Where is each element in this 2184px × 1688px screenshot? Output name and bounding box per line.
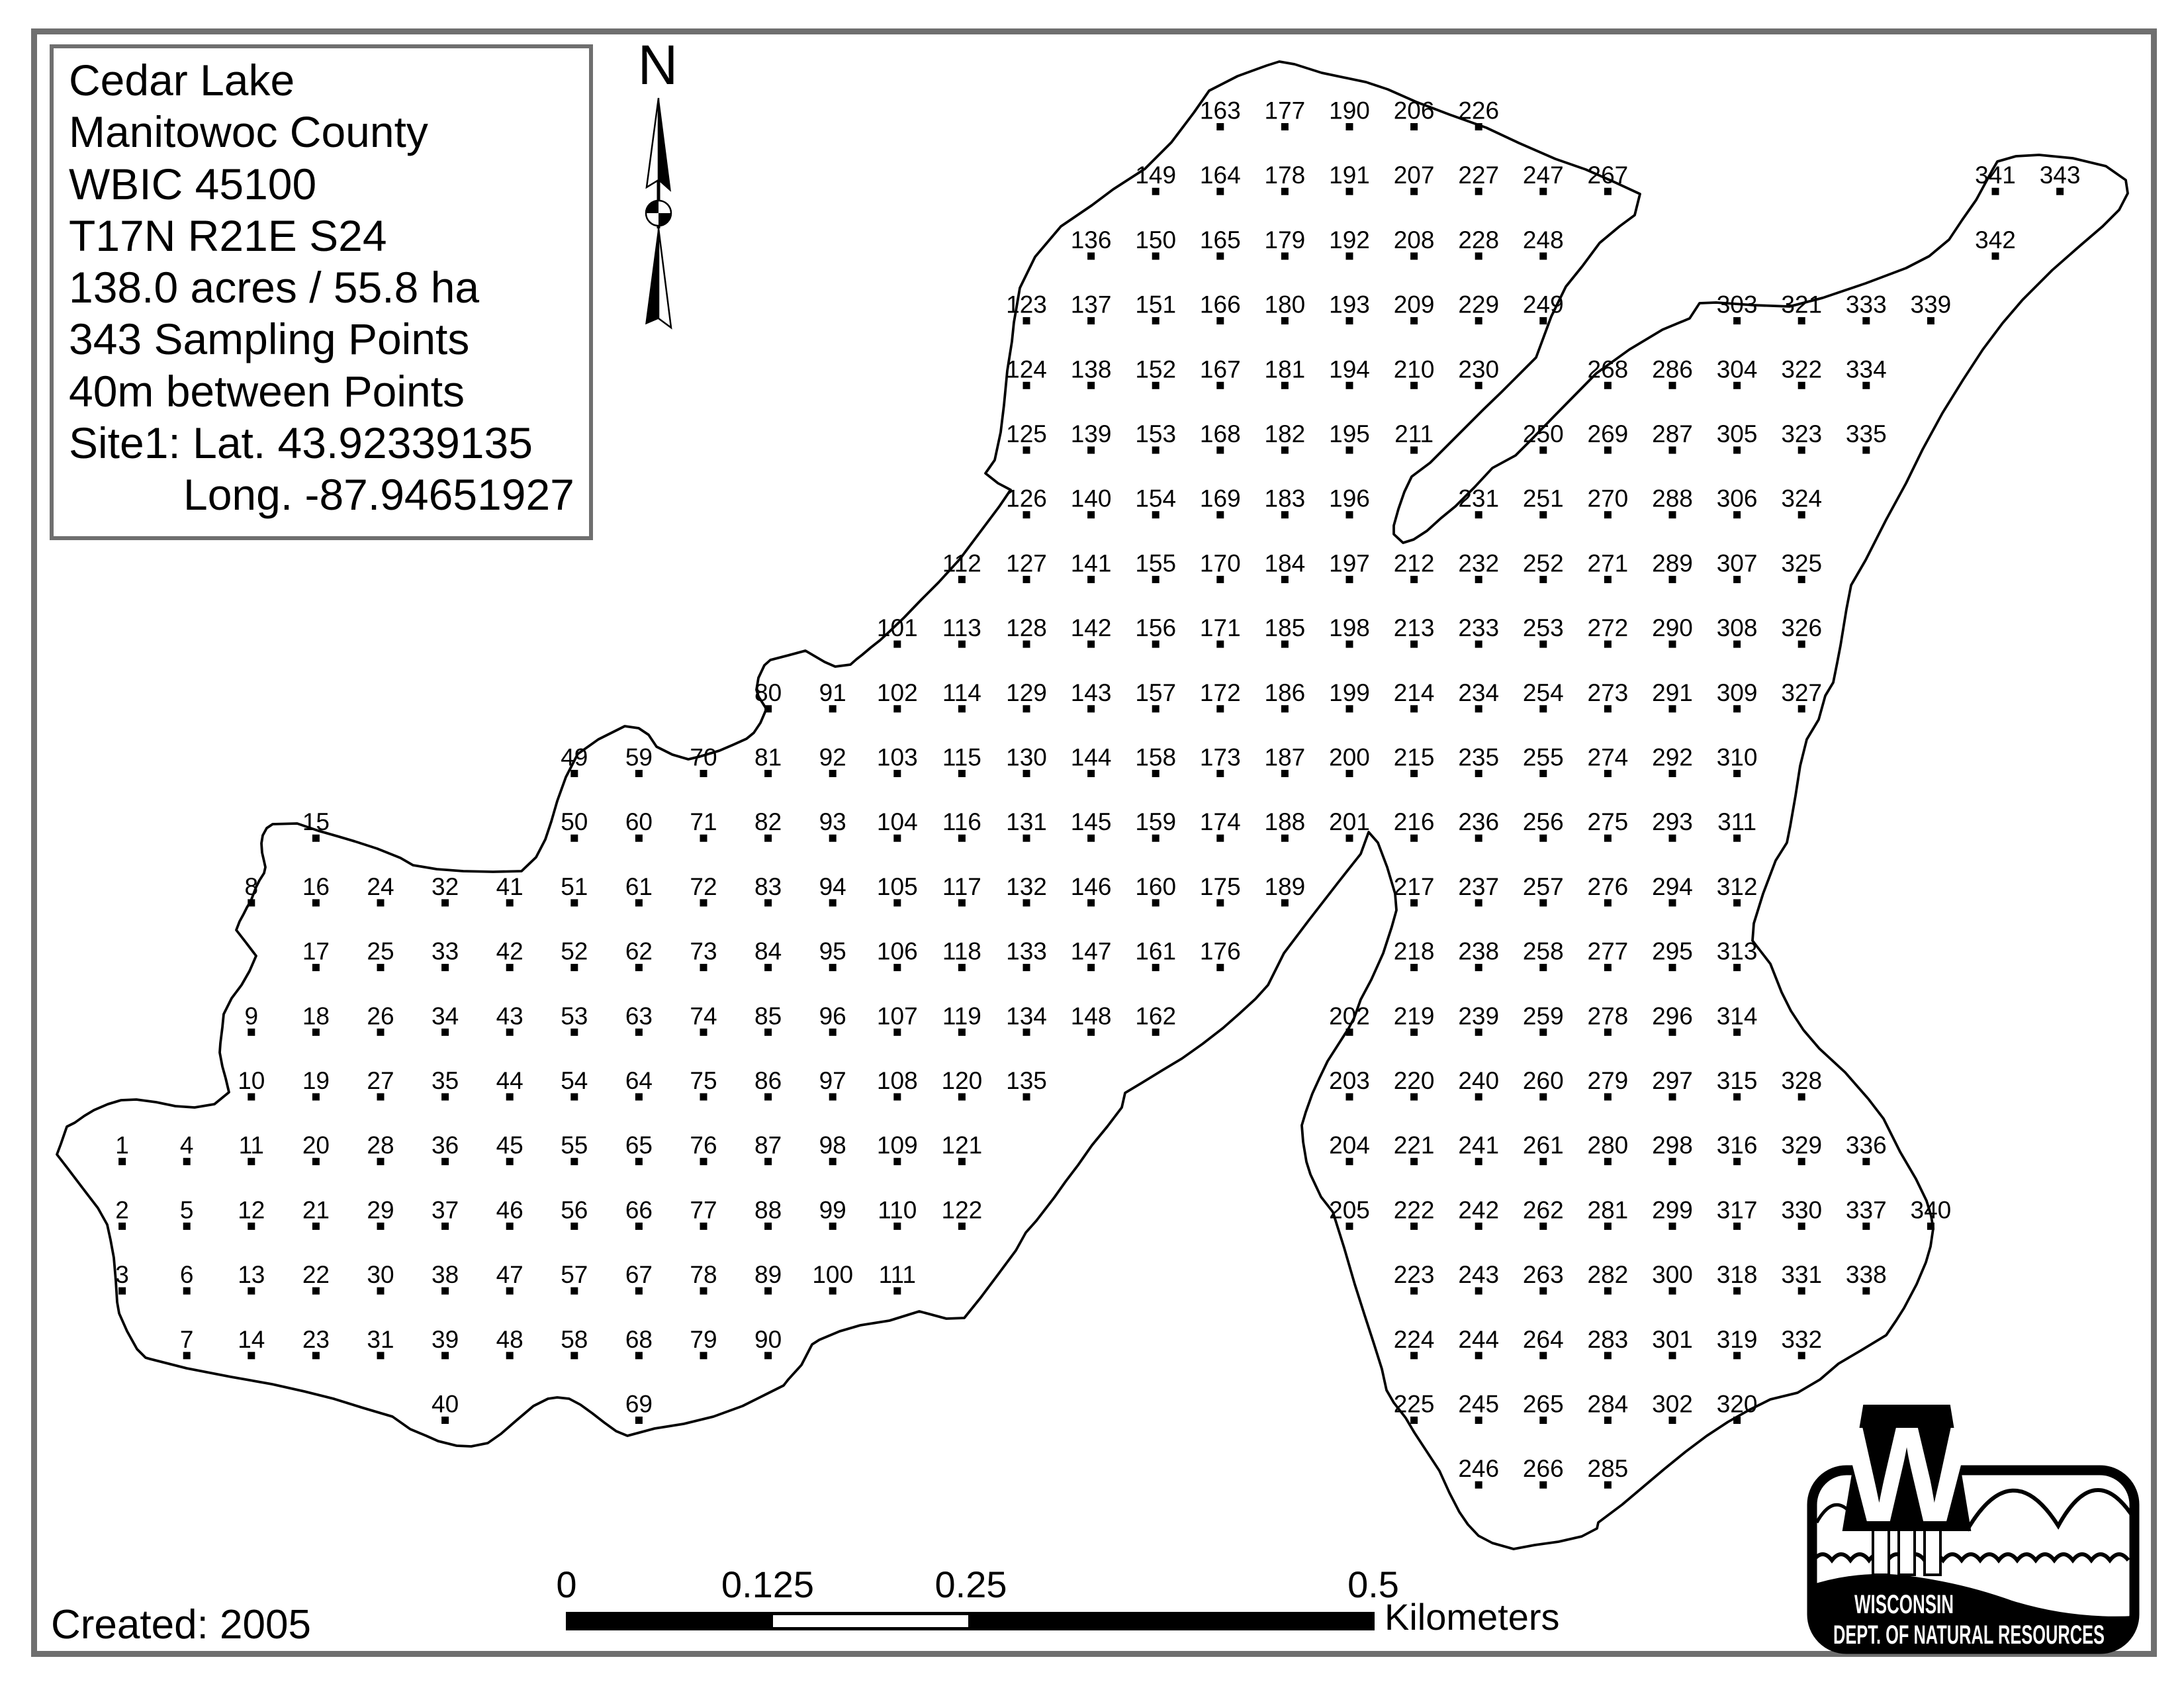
svg-text:127: 127 — [1006, 549, 1047, 577]
svg-text:138: 138 — [1071, 355, 1112, 383]
svg-text:162: 162 — [1135, 1002, 1176, 1029]
svg-text:134: 134 — [1006, 1002, 1047, 1029]
svg-text:170: 170 — [1200, 549, 1241, 577]
svg-text:169: 169 — [1200, 485, 1241, 512]
svg-text:334: 334 — [1846, 355, 1887, 383]
svg-text:277: 277 — [1588, 938, 1629, 965]
svg-text:151: 151 — [1135, 291, 1176, 318]
svg-text:231: 231 — [1458, 485, 1499, 512]
svg-text:195: 195 — [1329, 420, 1370, 447]
svg-text:113: 113 — [942, 614, 981, 641]
svg-text:0.25: 0.25 — [935, 1564, 1007, 1605]
svg-text:327: 327 — [1781, 679, 1822, 706]
svg-text:248: 248 — [1523, 226, 1564, 254]
svg-text:167: 167 — [1200, 355, 1241, 383]
svg-text:336: 336 — [1846, 1132, 1887, 1159]
svg-text:117: 117 — [942, 873, 981, 900]
svg-text:8: 8 — [245, 873, 259, 900]
svg-text:70: 70 — [690, 744, 717, 771]
svg-text:204: 204 — [1329, 1132, 1370, 1159]
svg-text:5: 5 — [180, 1196, 194, 1223]
svg-text:100: 100 — [812, 1261, 853, 1288]
svg-text:325: 325 — [1781, 549, 1822, 577]
svg-text:269: 269 — [1588, 420, 1629, 447]
svg-text:321: 321 — [1781, 291, 1822, 318]
svg-text:41: 41 — [496, 873, 523, 900]
svg-text:338: 338 — [1846, 1261, 1887, 1288]
svg-text:267: 267 — [1588, 162, 1629, 189]
svg-text:44: 44 — [496, 1067, 523, 1094]
svg-text:302: 302 — [1652, 1391, 1693, 1418]
svg-text:180: 180 — [1265, 291, 1306, 318]
svg-text:192: 192 — [1329, 226, 1370, 254]
svg-text:183: 183 — [1265, 485, 1306, 512]
svg-text:340: 340 — [1911, 1196, 1952, 1223]
svg-text:292: 292 — [1652, 744, 1693, 771]
svg-text:141: 141 — [1071, 549, 1112, 577]
svg-text:137: 137 — [1071, 291, 1112, 318]
svg-text:159: 159 — [1135, 808, 1176, 835]
svg-text:285: 285 — [1588, 1455, 1629, 1482]
svg-text:86: 86 — [754, 1067, 782, 1094]
svg-text:201: 201 — [1329, 808, 1370, 835]
svg-text:15: 15 — [302, 808, 330, 835]
svg-text:132: 132 — [1006, 873, 1047, 900]
svg-text:203: 203 — [1329, 1067, 1370, 1094]
svg-text:140: 140 — [1071, 485, 1112, 512]
svg-text:64: 64 — [625, 1067, 653, 1094]
svg-text:61: 61 — [625, 873, 653, 900]
svg-text:193: 193 — [1329, 291, 1370, 318]
svg-text:229: 229 — [1458, 291, 1499, 318]
svg-text:145: 145 — [1071, 808, 1112, 835]
svg-text:335: 335 — [1846, 420, 1887, 447]
svg-text:217: 217 — [1394, 873, 1435, 900]
svg-text:296: 296 — [1652, 1002, 1693, 1029]
svg-text:66: 66 — [625, 1196, 653, 1223]
svg-text:212: 212 — [1394, 549, 1435, 577]
svg-text:220: 220 — [1394, 1067, 1435, 1094]
svg-text:158: 158 — [1135, 744, 1176, 771]
svg-text:324: 324 — [1781, 485, 1822, 512]
svg-text:188: 188 — [1265, 808, 1306, 835]
svg-text:343: 343 — [2040, 162, 2081, 189]
svg-text:25: 25 — [367, 938, 394, 965]
svg-text:241: 241 — [1458, 1132, 1499, 1159]
svg-text:210: 210 — [1394, 355, 1435, 383]
svg-text:156: 156 — [1135, 614, 1176, 641]
svg-text:128: 128 — [1006, 614, 1047, 641]
svg-text:95: 95 — [819, 938, 846, 965]
svg-text:11: 11 — [239, 1132, 264, 1159]
svg-text:60: 60 — [625, 808, 653, 835]
svg-text:90: 90 — [754, 1326, 782, 1353]
svg-text:35: 35 — [432, 1067, 459, 1094]
svg-text:65: 65 — [625, 1132, 653, 1159]
svg-text:280: 280 — [1588, 1132, 1629, 1159]
svg-text:328: 328 — [1781, 1067, 1822, 1094]
svg-text:4: 4 — [180, 1132, 194, 1159]
svg-text:307: 307 — [1717, 549, 1758, 577]
svg-text:56: 56 — [561, 1196, 588, 1223]
svg-text:29: 29 — [367, 1196, 394, 1223]
svg-text:271: 271 — [1588, 549, 1629, 577]
svg-text:111: 111 — [879, 1261, 916, 1288]
svg-text:161: 161 — [1135, 938, 1176, 965]
svg-text:163: 163 — [1200, 97, 1241, 124]
svg-text:17: 17 — [302, 938, 330, 965]
svg-text:40: 40 — [432, 1391, 459, 1418]
svg-text:175: 175 — [1200, 873, 1241, 900]
svg-text:126: 126 — [1006, 485, 1047, 512]
svg-text:202: 202 — [1329, 1002, 1370, 1029]
svg-text:315: 315 — [1717, 1067, 1758, 1094]
svg-text:157: 157 — [1135, 679, 1176, 706]
svg-text:107: 107 — [877, 1002, 918, 1029]
svg-text:289: 289 — [1652, 549, 1693, 577]
svg-text:312: 312 — [1717, 873, 1758, 900]
svg-text:200: 200 — [1329, 744, 1370, 771]
svg-text:74: 74 — [690, 1002, 717, 1029]
svg-text:13: 13 — [238, 1261, 265, 1288]
svg-text:166: 166 — [1200, 291, 1241, 318]
svg-text:122: 122 — [942, 1196, 983, 1223]
svg-text:69: 69 — [625, 1391, 653, 1418]
svg-text:49: 49 — [561, 744, 588, 771]
svg-text:51: 51 — [561, 873, 588, 900]
svg-text:6: 6 — [180, 1261, 194, 1288]
svg-text:125: 125 — [1006, 420, 1047, 447]
svg-text:102: 102 — [877, 679, 918, 706]
svg-text:237: 237 — [1458, 873, 1499, 900]
svg-text:207: 207 — [1394, 162, 1435, 189]
svg-text:332: 332 — [1781, 1326, 1822, 1353]
svg-text:160: 160 — [1135, 873, 1176, 900]
svg-text:108: 108 — [877, 1067, 918, 1094]
svg-text:246: 246 — [1458, 1455, 1499, 1482]
svg-text:186: 186 — [1265, 679, 1306, 706]
svg-text:281: 281 — [1588, 1196, 1629, 1223]
svg-text:94: 94 — [819, 873, 846, 900]
svg-text:30: 30 — [367, 1261, 394, 1288]
svg-text:129: 129 — [1006, 679, 1047, 706]
svg-text:48: 48 — [496, 1326, 523, 1353]
svg-text:119: 119 — [942, 1002, 981, 1029]
svg-text:77: 77 — [690, 1196, 717, 1223]
svg-text:45: 45 — [496, 1132, 523, 1159]
svg-text:314: 314 — [1717, 1002, 1758, 1029]
svg-text:109: 109 — [877, 1132, 918, 1159]
svg-text:173: 173 — [1200, 744, 1241, 771]
svg-text:341: 341 — [1975, 162, 2016, 189]
svg-text:96: 96 — [819, 1002, 846, 1029]
svg-text:105: 105 — [877, 873, 918, 900]
svg-text:171: 171 — [1200, 614, 1241, 641]
svg-text:91: 91 — [819, 679, 846, 706]
svg-text:7: 7 — [180, 1326, 194, 1353]
svg-text:317: 317 — [1717, 1196, 1758, 1223]
svg-text:184: 184 — [1265, 549, 1306, 577]
svg-text:234: 234 — [1458, 679, 1499, 706]
svg-text:10: 10 — [238, 1067, 265, 1094]
svg-text:114: 114 — [942, 679, 981, 706]
svg-text:301: 301 — [1652, 1326, 1693, 1353]
svg-text:148: 148 — [1071, 1002, 1112, 1029]
svg-text:299: 299 — [1652, 1196, 1693, 1223]
svg-text:255: 255 — [1523, 744, 1564, 771]
svg-text:89: 89 — [754, 1261, 782, 1288]
svg-text:223: 223 — [1394, 1261, 1435, 1288]
svg-text:194: 194 — [1329, 355, 1370, 383]
svg-text:247: 247 — [1523, 162, 1564, 189]
svg-text:209: 209 — [1394, 291, 1435, 318]
svg-text:50: 50 — [561, 808, 588, 835]
svg-text:226: 226 — [1458, 97, 1499, 124]
svg-text:191: 191 — [1329, 162, 1370, 189]
svg-text:143: 143 — [1071, 679, 1112, 706]
svg-text:59: 59 — [625, 744, 653, 771]
svg-text:221: 221 — [1394, 1132, 1435, 1159]
svg-text:150: 150 — [1135, 226, 1176, 254]
svg-text:322: 322 — [1781, 355, 1822, 383]
svg-text:300: 300 — [1652, 1261, 1693, 1288]
svg-text:260: 260 — [1523, 1067, 1564, 1094]
svg-text:19: 19 — [302, 1067, 330, 1094]
svg-text:185: 185 — [1265, 614, 1306, 641]
svg-text:115: 115 — [942, 744, 981, 771]
svg-text:291: 291 — [1652, 679, 1693, 706]
svg-text:38: 38 — [432, 1261, 459, 1288]
svg-text:326: 326 — [1781, 614, 1822, 641]
svg-text:32: 32 — [432, 873, 459, 900]
svg-text:262: 262 — [1523, 1196, 1564, 1223]
svg-text:309: 309 — [1717, 679, 1758, 706]
svg-text:131: 131 — [1006, 808, 1047, 835]
svg-text:311: 311 — [1717, 808, 1756, 835]
svg-text:54: 54 — [561, 1067, 588, 1094]
svg-text:9: 9 — [245, 1002, 259, 1029]
svg-text:172: 172 — [1200, 679, 1241, 706]
svg-text:58: 58 — [561, 1326, 588, 1353]
svg-text:261: 261 — [1523, 1132, 1564, 1159]
svg-text:98: 98 — [819, 1132, 846, 1159]
svg-text:0: 0 — [556, 1564, 576, 1605]
svg-text:118: 118 — [942, 938, 981, 965]
svg-text:76: 76 — [690, 1132, 717, 1159]
svg-text:235: 235 — [1458, 744, 1499, 771]
svg-text:85: 85 — [754, 1002, 782, 1029]
svg-text:153: 153 — [1135, 420, 1176, 447]
svg-text:293: 293 — [1652, 808, 1693, 835]
svg-text:Created: 2005: Created: 2005 — [51, 1602, 311, 1648]
svg-text:218: 218 — [1394, 938, 1435, 965]
svg-text:250: 250 — [1523, 420, 1564, 447]
svg-text:251: 251 — [1523, 485, 1564, 512]
svg-text:275: 275 — [1588, 808, 1629, 835]
svg-text:187: 187 — [1265, 744, 1306, 771]
svg-text:333: 333 — [1846, 291, 1887, 318]
svg-text:24: 24 — [367, 873, 394, 900]
svg-text:152: 152 — [1135, 355, 1176, 383]
svg-text:28: 28 — [367, 1132, 394, 1159]
svg-text:155: 155 — [1135, 549, 1176, 577]
svg-text:164: 164 — [1200, 162, 1241, 189]
svg-text:142: 142 — [1071, 614, 1112, 641]
svg-text:279: 279 — [1588, 1067, 1629, 1094]
svg-text:228: 228 — [1458, 226, 1499, 254]
svg-text:238: 238 — [1458, 938, 1499, 965]
svg-text:306: 306 — [1717, 485, 1758, 512]
svg-text:274: 274 — [1588, 744, 1629, 771]
svg-text:39: 39 — [432, 1326, 459, 1353]
svg-text:308: 308 — [1717, 614, 1758, 641]
svg-text:208: 208 — [1394, 226, 1435, 254]
svg-text:329: 329 — [1781, 1132, 1822, 1159]
svg-text:84: 84 — [754, 938, 782, 965]
svg-text:3: 3 — [115, 1261, 129, 1288]
svg-text:136: 136 — [1071, 226, 1112, 254]
svg-text:232: 232 — [1458, 549, 1499, 577]
svg-text:149: 149 — [1135, 162, 1176, 189]
svg-text:53: 53 — [561, 1002, 588, 1029]
svg-text:330: 330 — [1781, 1196, 1822, 1223]
svg-text:253: 253 — [1523, 614, 1564, 641]
svg-text:121: 121 — [942, 1132, 983, 1159]
svg-text:219: 219 — [1394, 1002, 1435, 1029]
svg-text:21: 21 — [302, 1196, 330, 1223]
svg-text:245: 245 — [1458, 1391, 1499, 1418]
svg-text:71: 71 — [690, 808, 717, 835]
svg-text:319: 319 — [1717, 1326, 1758, 1353]
svg-text:270: 270 — [1588, 485, 1629, 512]
svg-text:268: 268 — [1588, 355, 1629, 383]
svg-text:287: 287 — [1652, 420, 1693, 447]
svg-text:239: 239 — [1458, 1002, 1499, 1029]
svg-text:305: 305 — [1717, 420, 1758, 447]
svg-text:263: 263 — [1523, 1261, 1564, 1288]
svg-text:43: 43 — [496, 1002, 523, 1029]
svg-text:68: 68 — [625, 1326, 653, 1353]
svg-text:124: 124 — [1006, 355, 1047, 383]
svg-text:259: 259 — [1523, 1002, 1564, 1029]
svg-text:278: 278 — [1588, 1002, 1629, 1029]
svg-text:47: 47 — [496, 1261, 523, 1288]
svg-text:256: 256 — [1523, 808, 1564, 835]
svg-text:230: 230 — [1458, 355, 1499, 383]
svg-text:252: 252 — [1523, 549, 1564, 577]
svg-text:257: 257 — [1523, 873, 1564, 900]
svg-text:258: 258 — [1523, 938, 1564, 965]
svg-text:295: 295 — [1652, 938, 1693, 965]
svg-text:282: 282 — [1588, 1261, 1629, 1288]
svg-text:196: 196 — [1329, 485, 1370, 512]
svg-text:120: 120 — [942, 1067, 983, 1094]
svg-text:242: 242 — [1458, 1196, 1499, 1223]
svg-text:42: 42 — [496, 938, 523, 965]
svg-text:240: 240 — [1458, 1067, 1499, 1094]
svg-text:103: 103 — [877, 744, 918, 771]
svg-text:2: 2 — [115, 1196, 129, 1223]
svg-text:177: 177 — [1265, 97, 1306, 124]
svg-text:Kilometers: Kilometers — [1385, 1596, 1560, 1638]
svg-text:224: 224 — [1394, 1326, 1435, 1353]
svg-text:144: 144 — [1071, 744, 1112, 771]
svg-text:130: 130 — [1006, 744, 1047, 771]
svg-text:198: 198 — [1329, 614, 1370, 641]
svg-text:73: 73 — [690, 938, 717, 965]
svg-text:0.125: 0.125 — [721, 1564, 814, 1605]
svg-text:297: 297 — [1652, 1067, 1693, 1094]
svg-text:16: 16 — [302, 873, 330, 900]
svg-text:DEPT. OF NATURAL RESOURCES: DEPT. OF NATURAL RESOURCES — [1833, 1620, 2105, 1650]
svg-text:254: 254 — [1523, 679, 1564, 706]
svg-text:106: 106 — [877, 938, 918, 965]
svg-text:18: 18 — [302, 1002, 330, 1029]
svg-text:339: 339 — [1911, 291, 1952, 318]
svg-text:W: W — [1843, 1399, 1971, 1550]
svg-text:310: 310 — [1717, 744, 1758, 771]
svg-text:92: 92 — [819, 744, 846, 771]
svg-text:46: 46 — [496, 1196, 523, 1223]
svg-text:110: 110 — [878, 1196, 917, 1223]
svg-text:342: 342 — [1975, 226, 2016, 254]
svg-text:182: 182 — [1265, 420, 1306, 447]
svg-text:101: 101 — [877, 614, 918, 641]
svg-text:31: 31 — [367, 1326, 394, 1353]
svg-text:23: 23 — [302, 1326, 330, 1353]
svg-text:190: 190 — [1329, 97, 1370, 124]
svg-text:294: 294 — [1652, 873, 1693, 900]
svg-text:244: 244 — [1458, 1326, 1499, 1353]
svg-text:189: 189 — [1265, 873, 1306, 900]
svg-text:123: 123 — [1006, 291, 1047, 318]
svg-text:93: 93 — [819, 808, 846, 835]
svg-text:116: 116 — [942, 808, 981, 835]
svg-text:283: 283 — [1588, 1326, 1629, 1353]
svg-text:104: 104 — [877, 808, 918, 835]
svg-text:264: 264 — [1523, 1326, 1564, 1353]
svg-text:211: 211 — [1394, 420, 1433, 447]
svg-text:36: 36 — [432, 1132, 459, 1159]
svg-text:316: 316 — [1717, 1132, 1758, 1159]
svg-text:57: 57 — [561, 1261, 588, 1288]
svg-text:236: 236 — [1458, 808, 1499, 835]
svg-text:N: N — [638, 34, 678, 96]
svg-text:265: 265 — [1523, 1391, 1564, 1418]
svg-text:205: 205 — [1329, 1196, 1370, 1223]
svg-text:174: 174 — [1200, 808, 1241, 835]
svg-text:266: 266 — [1523, 1455, 1564, 1482]
svg-text:243: 243 — [1458, 1261, 1499, 1288]
svg-text:72: 72 — [690, 873, 717, 900]
svg-text:331: 331 — [1781, 1261, 1822, 1288]
svg-text:323: 323 — [1781, 420, 1822, 447]
svg-text:63: 63 — [625, 1002, 653, 1029]
svg-text:99: 99 — [819, 1196, 846, 1223]
svg-text:320: 320 — [1717, 1391, 1758, 1418]
svg-text:37: 37 — [432, 1196, 459, 1223]
svg-text:82: 82 — [754, 808, 782, 835]
svg-text:78: 78 — [690, 1261, 717, 1288]
svg-text:83: 83 — [754, 873, 782, 900]
svg-text:22: 22 — [302, 1261, 330, 1288]
svg-text:80: 80 — [754, 679, 782, 706]
svg-text:146: 146 — [1071, 873, 1112, 900]
svg-text:97: 97 — [819, 1067, 846, 1094]
svg-text:34: 34 — [432, 1002, 459, 1029]
svg-text:55: 55 — [561, 1132, 588, 1159]
svg-text:249: 249 — [1523, 291, 1564, 318]
